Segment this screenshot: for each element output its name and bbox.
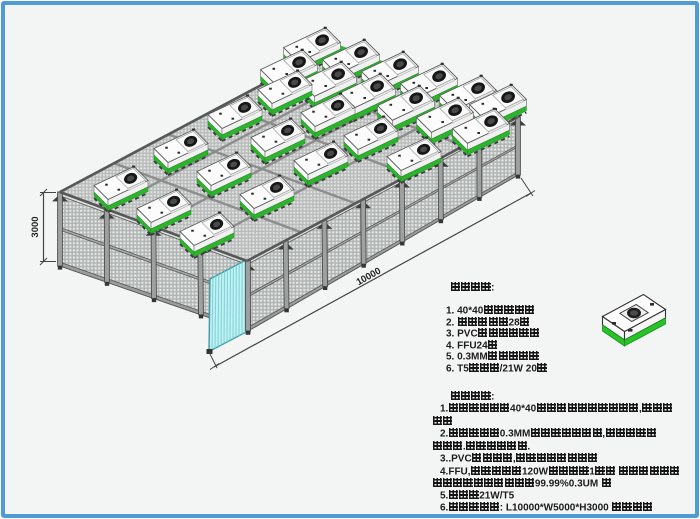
svg-text:3000: 3000 (30, 216, 41, 237)
svg-text:10000: 10000 (355, 266, 383, 288)
